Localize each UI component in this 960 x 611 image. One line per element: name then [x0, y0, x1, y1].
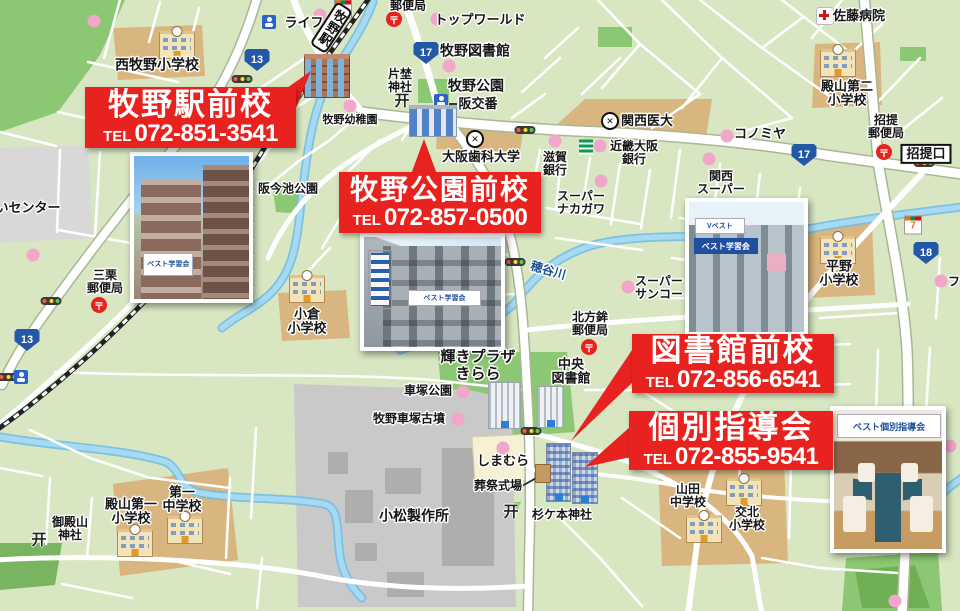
- photo-best-gakushukai: Vベスト ベスト学習会: [685, 198, 808, 336]
- landmark-dot-icon: [443, 60, 456, 73]
- photo-sign: ベスト学習会: [408, 290, 481, 306]
- map-label: 佐藤病院: [833, 9, 885, 23]
- map-label: 関西医大: [621, 114, 673, 128]
- map-label: 第一 中学校: [162, 486, 201, 515]
- map-label: 葬祭式場: [474, 479, 522, 492]
- kirara-tower-icon: [488, 382, 521, 429]
- map-label: 阪交番: [458, 97, 497, 111]
- shrine-torii-icon: 开: [503, 501, 518, 522]
- map-label: 三栗 郵便局: [87, 269, 123, 295]
- photo-desk: [875, 473, 901, 543]
- map-label: 関西 スーパー: [697, 170, 745, 196]
- banner-makino-koenmae: 牧野公園前校 TEL072-857-0500: [339, 172, 541, 233]
- photo-sign: ベスト個別指導会: [837, 414, 941, 438]
- school-building-icon: [159, 31, 195, 59]
- map-label: 平野 小学校: [819, 260, 858, 289]
- map-label: 招提口: [900, 144, 951, 164]
- photo-chair: [901, 463, 918, 482]
- school-building-icon: [686, 515, 722, 543]
- traffic-light-icon: [505, 258, 526, 266]
- tel-label: TEL: [103, 129, 131, 144]
- school-building-icon: [726, 478, 762, 506]
- photo-sign: [368, 250, 392, 309]
- map-label: 阪今池公園: [258, 182, 318, 195]
- hospital-icon: [816, 7, 834, 25]
- post-office-icon: 〒: [581, 339, 597, 355]
- map-label: 郵便局: [390, 0, 426, 13]
- banner-kobetsu-shidokai: 個別指導会 TEL072-855-9541: [629, 411, 833, 470]
- school-building-icon: [167, 516, 203, 544]
- landmark-dot-icon: [889, 595, 902, 608]
- map-label: 小松製作所: [379, 508, 449, 523]
- photo-building: [141, 179, 201, 299]
- map-label: スーパー ナカガワ: [557, 190, 605, 216]
- map-label: 北方鉾 郵便局: [572, 311, 608, 337]
- police-box-icon: [14, 370, 28, 384]
- photo-makino-ekimae: ベスト学習会: [130, 152, 253, 303]
- police-box-icon: [262, 15, 276, 29]
- banner-title: 図書館前校: [651, 335, 816, 368]
- map-label: 殿山第二 小学校: [821, 80, 873, 109]
- landmark-dot-icon: [703, 153, 716, 166]
- photo-sign: ベスト学習会: [694, 238, 758, 254]
- map-canvas: 牧野駅 ベスト学習会 ベスト学習会 Vベスト ベスト学習会 ベスト個別指導会: [0, 0, 960, 611]
- landmark-dot-icon: [344, 100, 357, 113]
- map-label: 近畿大阪 銀行: [610, 140, 658, 166]
- map-label: 滋賀 銀行: [543, 151, 567, 177]
- map-label: 牧野幼稚園: [323, 114, 378, 126]
- photo-chair: [858, 463, 875, 482]
- chuo-library-tower-icon: [537, 386, 564, 428]
- banner-title: 牧野公園前校: [350, 175, 530, 204]
- traffic-light-icon: [41, 297, 62, 305]
- makino-ekimae-building-icon: [304, 54, 350, 98]
- map-label: トップワールド: [434, 13, 525, 27]
- banner-title: 個別指導会: [649, 412, 814, 445]
- makino-koenmae-building-icon: [409, 105, 457, 137]
- convenience-store-icon: 7: [904, 216, 922, 235]
- university-mark-icon: ✕: [601, 112, 619, 130]
- post-office-icon: 〒: [91, 297, 107, 313]
- bank-icon: [579, 140, 593, 155]
- landmark-dot-icon: [549, 135, 562, 148]
- map-label: 牧野図書館: [440, 43, 510, 58]
- traffic-light-icon: [521, 427, 542, 435]
- map-label: フ: [948, 275, 960, 288]
- photo-sign: ベスト学習会: [143, 253, 193, 276]
- banner-toshokanmae: 図書館前校 TEL072-856-6541: [632, 334, 834, 393]
- tel-number: 072-856-6541: [677, 368, 820, 392]
- post-office-icon: 〒: [386, 11, 402, 27]
- map-label: いセンター: [0, 201, 61, 215]
- photo-chair: [843, 496, 867, 532]
- landmark-dot-icon: [622, 281, 635, 294]
- funeral-hall-building-icon: [535, 464, 551, 483]
- map-label: 西牧野小学校: [115, 57, 199, 72]
- landmark-dot-icon: [721, 130, 734, 143]
- landmark-dot-icon: [595, 175, 608, 188]
- tel-label: TEL: [644, 452, 672, 467]
- photo-chair: [910, 496, 934, 532]
- map-label: 御殿山 神社: [52, 516, 88, 542]
- landmark-dot-icon: [935, 275, 948, 288]
- landmark-dot-icon: [452, 413, 465, 426]
- map-label: 杉ケ本神社: [532, 508, 592, 521]
- photo-makino-koenmae: ベスト学習会: [360, 233, 505, 351]
- tel-number: 072-857-0500: [384, 206, 527, 230]
- kobetsu-tower-icon: [572, 452, 598, 504]
- map-label: 中央 図書館: [551, 358, 590, 387]
- school-building-icon: [820, 49, 856, 77]
- traffic-light-icon: [232, 75, 253, 83]
- tel-label: TEL: [646, 375, 674, 390]
- post-office-icon: 〒: [876, 144, 892, 160]
- map-label: コノミヤ: [734, 127, 786, 141]
- photo-window: [767, 254, 785, 271]
- map-label: 招提 郵便局: [868, 114, 904, 140]
- map-label: 輝きプラザ きらら: [440, 350, 515, 383]
- map-label: スーパー サンコー: [635, 275, 683, 301]
- map-label: 殿山第一 小学校: [105, 498, 157, 527]
- map-label: ライフ: [284, 16, 323, 30]
- map-label: しまむら: [477, 454, 529, 468]
- university-mark-icon: ✕: [466, 130, 484, 148]
- traffic-light-icon: [515, 126, 536, 134]
- map-label: 車塚公園: [404, 384, 452, 397]
- banner-title: 牧野駅前校: [108, 89, 273, 122]
- tel-number: 072-851-3541: [134, 122, 277, 146]
- landmark-dot-icon: [27, 249, 40, 262]
- map-label: 片埜 神社: [388, 68, 412, 94]
- school-building-icon: [117, 529, 153, 557]
- map-label: 大阪歯科大学: [442, 150, 520, 164]
- shrine-torii-icon: 开: [31, 529, 46, 550]
- map-label: 牧野車塚古墳: [373, 412, 445, 425]
- school-building-icon: [289, 275, 325, 303]
- tel-label: TEL: [353, 213, 381, 228]
- map-label: 山田 中学校: [670, 483, 706, 509]
- map-label: 交北 小学校: [729, 506, 765, 532]
- landmark-dot-icon: [88, 15, 101, 28]
- photo-roof-sign: Vベスト: [695, 218, 745, 234]
- tel-number: 072-855-9541: [675, 445, 818, 469]
- map-label: 牧野公園: [448, 78, 504, 93]
- landmark-dot-icon: [457, 386, 470, 399]
- map-label: 小倉 小学校: [287, 308, 326, 337]
- photo-building: [203, 165, 249, 299]
- banner-makino-ekimae: 牧野駅前校 TEL072-851-3541: [85, 87, 296, 148]
- photo-kobetsu-classroom: ベスト個別指導会: [830, 406, 946, 553]
- landmark-dot-icon: [594, 140, 607, 153]
